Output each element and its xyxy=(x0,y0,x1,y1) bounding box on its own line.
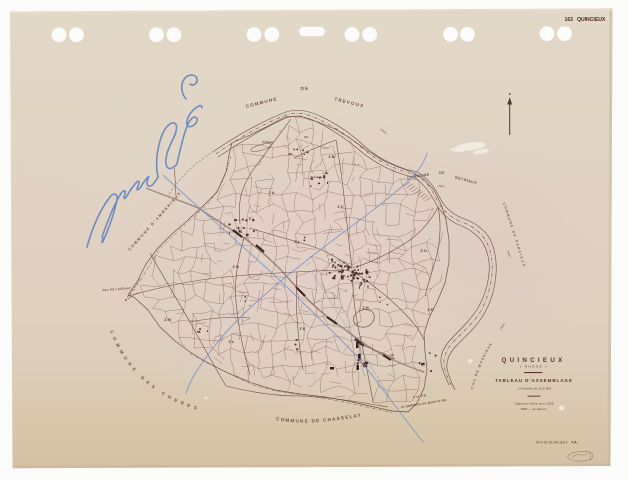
svg-text:T.A.: T.A. xyxy=(571,441,578,445)
svg-text:à l’échelle de 1/10 000: à l’échelle de 1/10 000 xyxy=(518,386,552,390)
svg-text:163: 163 xyxy=(565,17,574,23)
svg-text:19B: 19B xyxy=(288,152,293,156)
svg-text:St Roque: St Roque xyxy=(262,140,274,144)
svg-text:DE: DE xyxy=(300,86,309,91)
svg-text:Veissieux: Veissieux xyxy=(310,175,322,179)
svg-text:QUINCIEUX: QUINCIEUX xyxy=(577,17,606,23)
svg-text:A3: A3 xyxy=(304,135,308,139)
svg-text:ZN: ZN xyxy=(232,264,239,269)
svg-text:DE: DE xyxy=(439,171,445,175)
svg-text:ZB: ZB xyxy=(328,154,335,159)
svg-text:ZK: ZK xyxy=(299,326,306,331)
svg-text:Cadastre révisé pour 1936: Cadastre révisé pour 1936 xyxy=(514,401,553,405)
svg-text:( AIN ): ( AIN ) xyxy=(437,184,445,189)
svg-text:CS: CS xyxy=(390,353,394,357)
svg-text:ZA: ZA xyxy=(268,190,275,195)
svg-text:( RHÔNE ): ( RHÔNE ) xyxy=(520,364,548,369)
svg-text:ZO: ZO xyxy=(420,248,428,253)
svg-text:QUINCIEUX: QUINCIEUX xyxy=(501,357,565,364)
svg-text:Mi 4-93 QUINCIEUX: Mi 4-93 QUINCIEUX xyxy=(536,441,568,445)
svg-text:1980 — 2e édition: 1980 — 2e édition xyxy=(520,407,546,411)
svg-text:ZM: ZM xyxy=(164,317,172,322)
svg-text:ZH: ZH xyxy=(362,305,369,310)
svg-text:TABLEAU D’ASSEMBLAGE: TABLEAU D’ASSEMBLAGE xyxy=(495,378,573,383)
svg-text:ZL: ZL xyxy=(229,339,236,344)
svg-text:ZE: ZE xyxy=(427,307,434,312)
svg-text:ZI: ZI xyxy=(294,239,300,244)
svg-text:ZC: ZC xyxy=(337,204,344,209)
